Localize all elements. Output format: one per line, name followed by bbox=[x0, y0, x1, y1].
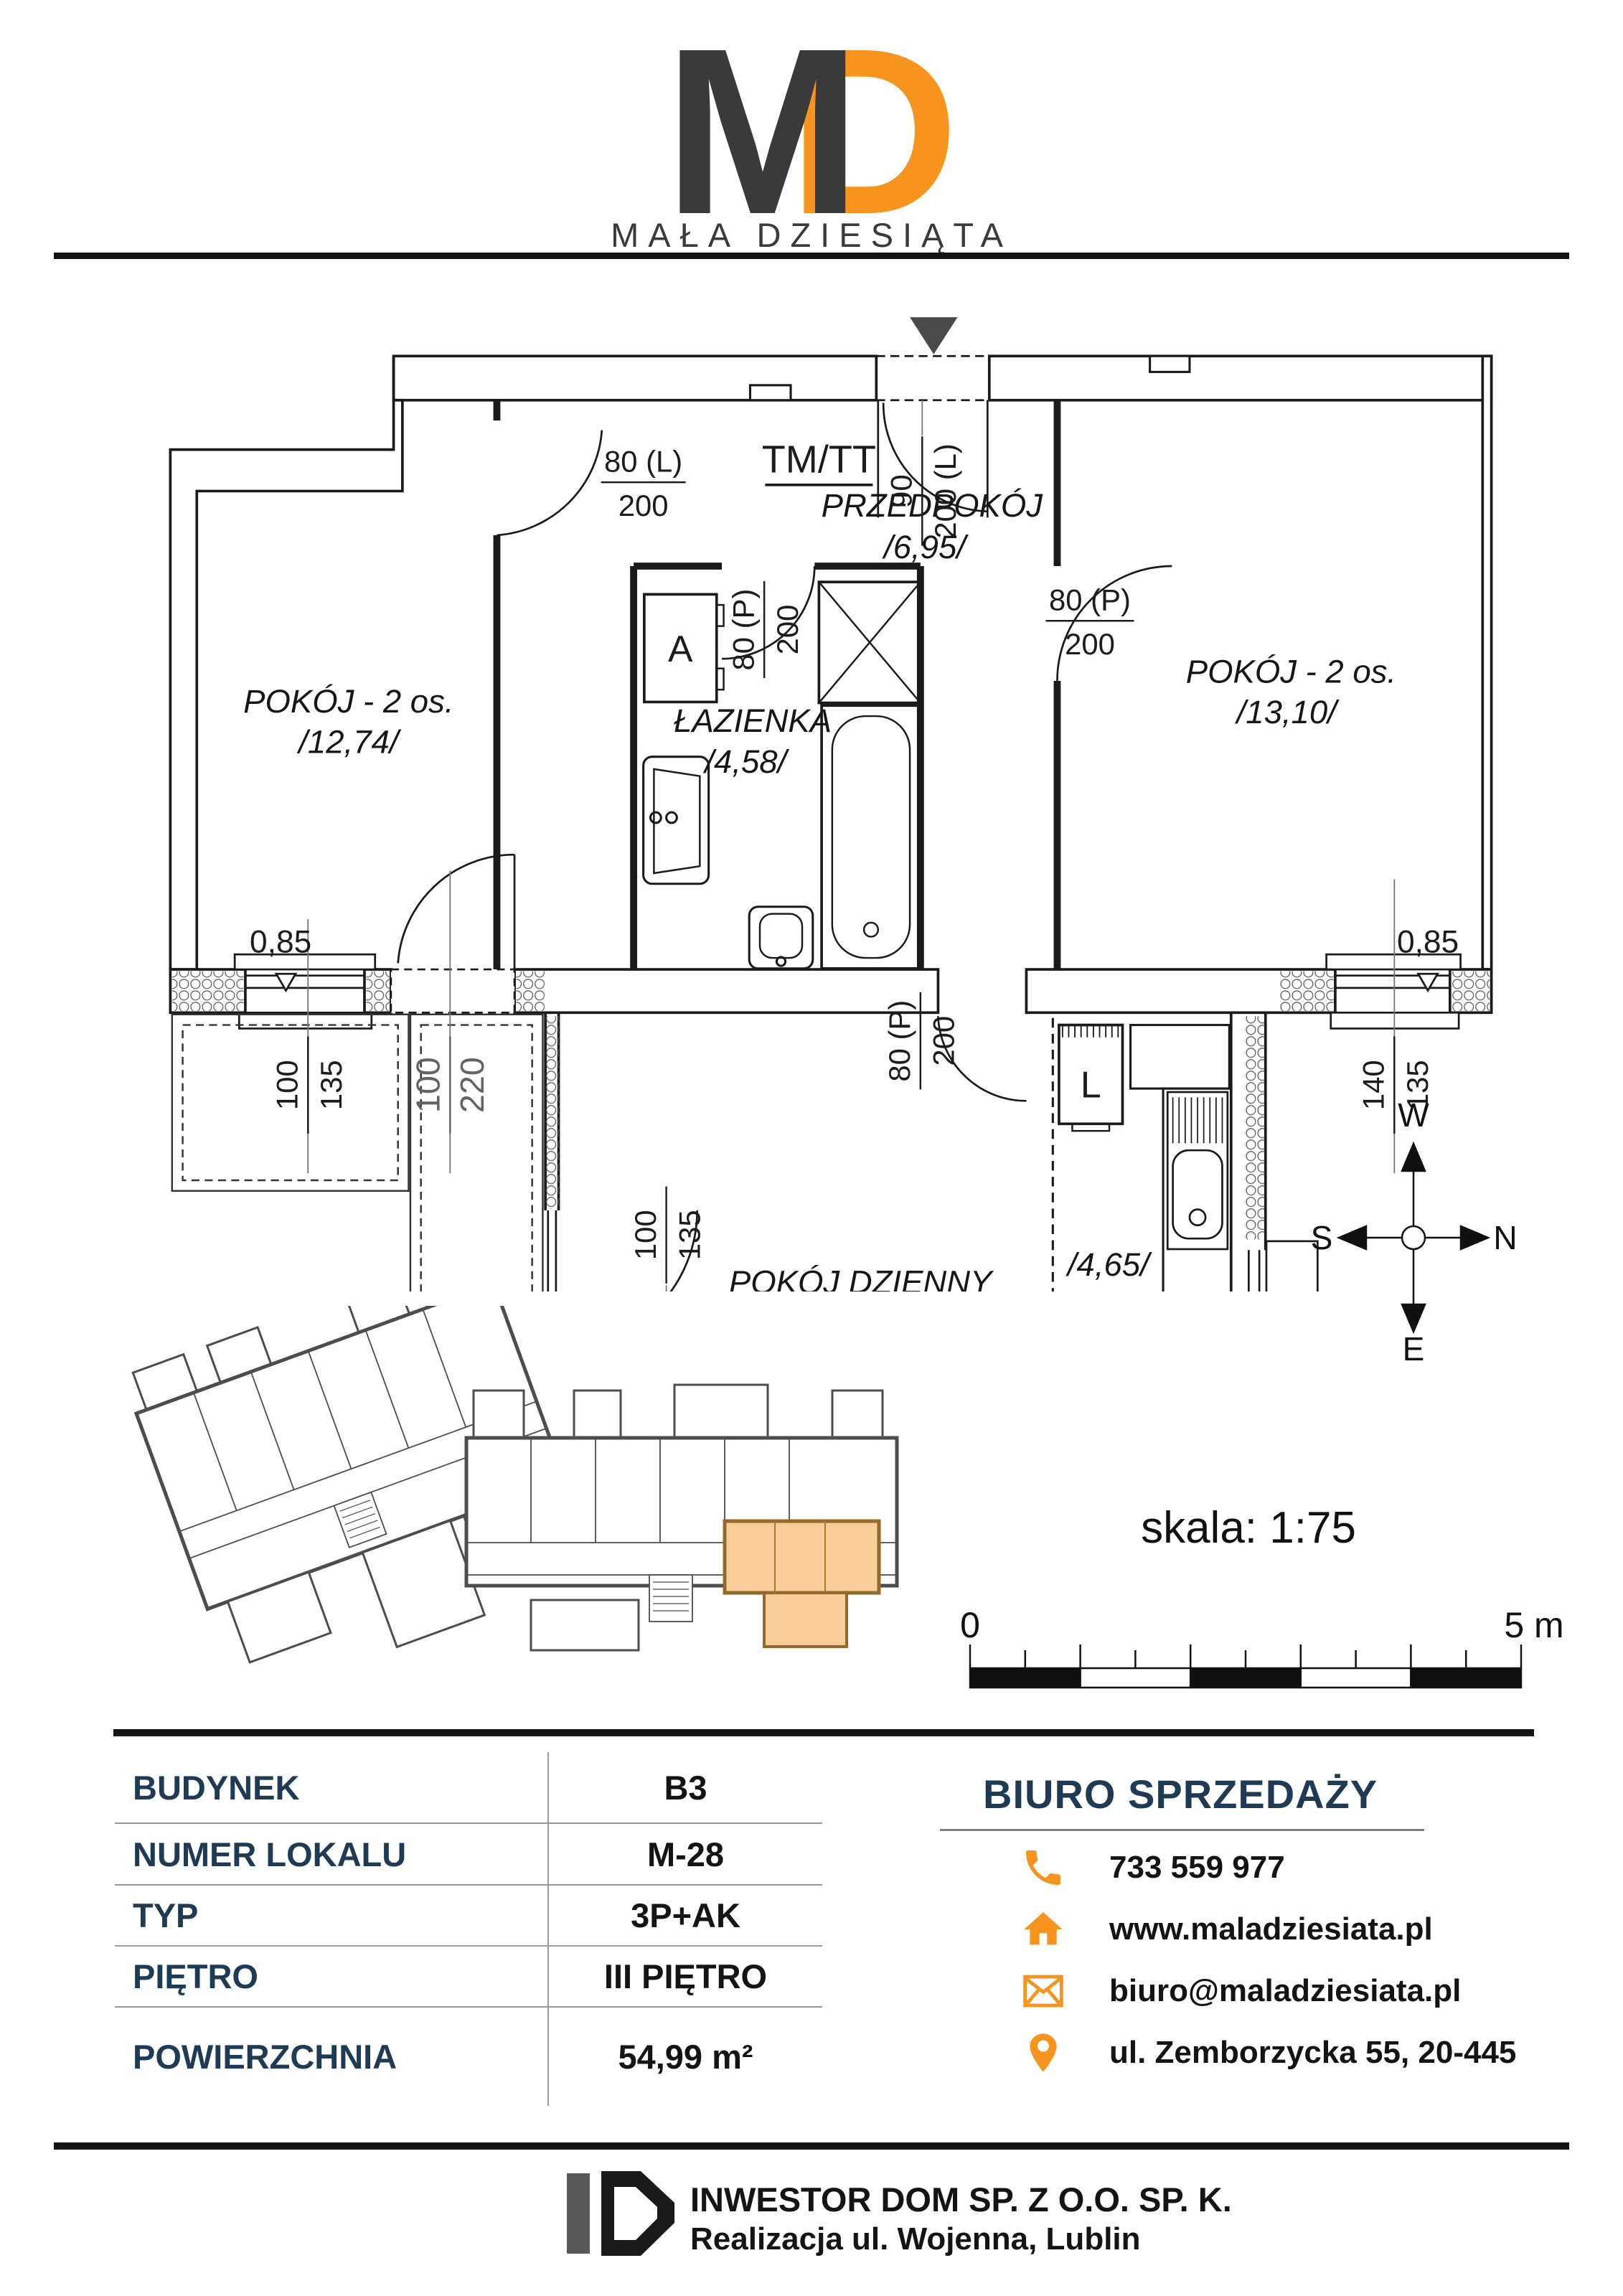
logo-letter-m: M bbox=[664, 0, 854, 263]
contact-phone-row: 733 559 977 bbox=[940, 1843, 1571, 1893]
room-right-name: POKÓJ - 2 os. bbox=[1186, 653, 1396, 690]
scale-start: 0 bbox=[960, 1605, 980, 1645]
investor-address: Realizacja ul. Wojenna, Lublin bbox=[690, 2221, 1141, 2257]
window-right-width: 0,85 bbox=[1397, 925, 1459, 960]
svg-text:135: 135 bbox=[314, 1060, 348, 1110]
row-typ-label: TYP bbox=[115, 1886, 547, 1947]
building-overview-plan bbox=[108, 1306, 1033, 1665]
svg-text:200: 200 bbox=[618, 489, 669, 522]
unit-details-table: BUDYNEK B3 NUMER LOKALU M-28 TYP 3P+AK P… bbox=[115, 1752, 822, 2106]
svg-text:90: 90 bbox=[885, 474, 918, 508]
compass-n: N bbox=[1493, 1219, 1517, 1256]
kitchen-sink-icon bbox=[1167, 1092, 1228, 1249]
scale-label: skala: 1:75 bbox=[1141, 1503, 1356, 1553]
svg-text:100: 100 bbox=[270, 1060, 304, 1110]
dim-window-bottom: 100 135 bbox=[629, 1187, 706, 1284]
svg-text:220: 220 bbox=[453, 1057, 491, 1113]
fridge-label: L bbox=[1081, 1063, 1101, 1105]
svg-text:200: 200 bbox=[927, 1016, 961, 1066]
bathroom-area: /4,58/ bbox=[702, 743, 789, 780]
row-pietro-value: III PIĘTRO bbox=[547, 1947, 822, 2008]
scale-end: 5 m bbox=[1504, 1605, 1563, 1645]
dim-door-left-room: 80 (L) 200 bbox=[601, 444, 686, 522]
window-left-width: 0,85 bbox=[250, 925, 311, 960]
flat-card-page: MD MAŁA DZIESIĄTA bbox=[0, 0, 1623, 2296]
email-address: biuro@maladziesiata.pl bbox=[1109, 1973, 1461, 2009]
footer-divider bbox=[54, 2142, 1569, 2150]
floor-plan: POKÓJ - 2 os. /12,74/ ŁAZIENKA /4,58/ PR… bbox=[144, 301, 1507, 1291]
row-numer-label: NUMER LOKALU bbox=[115, 1824, 547, 1886]
svg-text:200: 200 bbox=[1065, 627, 1115, 661]
svg-text:200 (L): 200 (L) bbox=[928, 443, 962, 538]
home-icon bbox=[1020, 1906, 1066, 1952]
row-numer-value: M-28 bbox=[547, 1824, 822, 1886]
kitchen-area-label: /4,65/ bbox=[1065, 1246, 1152, 1283]
room-left-area: /12,74/ bbox=[296, 724, 402, 761]
row-budynek-label: BUDYNEK bbox=[115, 1752, 547, 1824]
sales-office-block: BIURO SPRZEDAŻY 733 559 977 www.maladzie… bbox=[940, 1771, 1571, 1831]
bathtub-icon bbox=[822, 705, 921, 969]
row-pietro-label: PIĘTRO bbox=[115, 1947, 547, 2008]
table-top-divider bbox=[113, 1729, 1534, 1736]
bathroom-name: ŁAZIENKA bbox=[674, 702, 832, 739]
row-powierzchnia-value: 54,99 m² bbox=[547, 2008, 822, 2106]
entrance-marker-icon bbox=[910, 317, 957, 354]
dim-window-left: 100 135 bbox=[270, 1037, 347, 1134]
dim-door-bath: 80 (P) 200 bbox=[726, 581, 804, 678]
tm-tt-label: TM/TT bbox=[762, 438, 876, 481]
contact-website-row: www.maladziesiata.pl bbox=[940, 1904, 1571, 1954]
svg-text:80 (P): 80 (P) bbox=[883, 1000, 916, 1082]
developer-logo: MD MAŁA DZIESIĄTA bbox=[0, 13, 1623, 252]
svg-text:100: 100 bbox=[410, 1057, 447, 1113]
compass-e: E bbox=[1403, 1330, 1425, 1363]
room-left-name: POKÓJ - 2 os. bbox=[243, 683, 453, 720]
scale-bar: skala: 1:75 0 5 m bbox=[954, 1485, 1564, 1700]
phone-number: 733 559 977 bbox=[1109, 1850, 1285, 1886]
contact-email-row: biuro@maladziesiata.pl bbox=[940, 1966, 1571, 2016]
svg-text:135: 135 bbox=[672, 1210, 706, 1260]
investor-name: INWESTOR DOM SP. Z O.O. SP. K. bbox=[690, 2180, 1232, 2219]
phone-icon bbox=[1020, 1845, 1066, 1891]
washer-label: A bbox=[668, 628, 693, 669]
website-url: www.maladziesiata.pl bbox=[1109, 1911, 1433, 1947]
room-right-area: /13,10/ bbox=[1235, 694, 1340, 730]
sink-icon bbox=[644, 757, 709, 884]
svg-text:80 (L): 80 (L) bbox=[604, 444, 682, 478]
row-typ-value: 3P+AK bbox=[547, 1886, 822, 1947]
svg-text:200: 200 bbox=[771, 605, 804, 655]
row-budynek-value: B3 bbox=[547, 1752, 822, 1824]
pin-icon bbox=[1020, 2030, 1066, 2076]
investor-logo-icon bbox=[567, 2171, 682, 2257]
sales-office-title: BIURO SPRZEDAŻY bbox=[940, 1771, 1571, 1817]
svg-text:80 (P): 80 (P) bbox=[726, 589, 760, 671]
contact-address-row: ul. Zemborzycka 55, 20-445 bbox=[940, 2028, 1571, 2078]
compass-s: S bbox=[1311, 1219, 1333, 1256]
compass-rose-icon: W S N E bbox=[1306, 1076, 1521, 1363]
svg-text:80 (P): 80 (P) bbox=[1049, 583, 1131, 616]
svg-text:100: 100 bbox=[629, 1210, 662, 1260]
shaft-icon bbox=[819, 582, 920, 703]
sales-office-underline bbox=[940, 1829, 1424, 1831]
toilet-icon bbox=[749, 907, 813, 969]
kitchen-cabinet bbox=[1131, 1025, 1230, 1089]
office-address: ul. Zemborzycka 55, 20-445 bbox=[1109, 2035, 1516, 2071]
row-powierzchnia-label: POWIERZCHNIA bbox=[115, 2008, 547, 2106]
compass-w: W bbox=[1398, 1096, 1429, 1134]
highlighted-unit bbox=[725, 1521, 879, 1647]
mail-icon bbox=[1020, 1968, 1066, 2014]
living-name: POKÓJ DZIENNY bbox=[729, 1264, 994, 1291]
